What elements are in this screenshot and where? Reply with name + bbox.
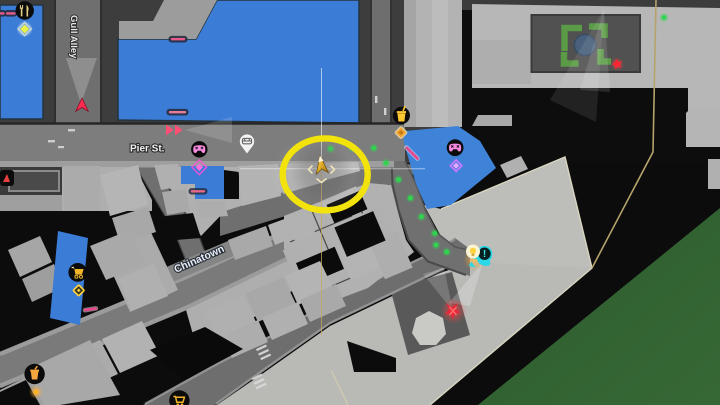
svg-text:Gull Alley: Gull Alley xyxy=(68,15,79,59)
svg-text:Pier St.: Pier St. xyxy=(130,144,165,155)
svg-text:!: ! xyxy=(483,249,486,260)
